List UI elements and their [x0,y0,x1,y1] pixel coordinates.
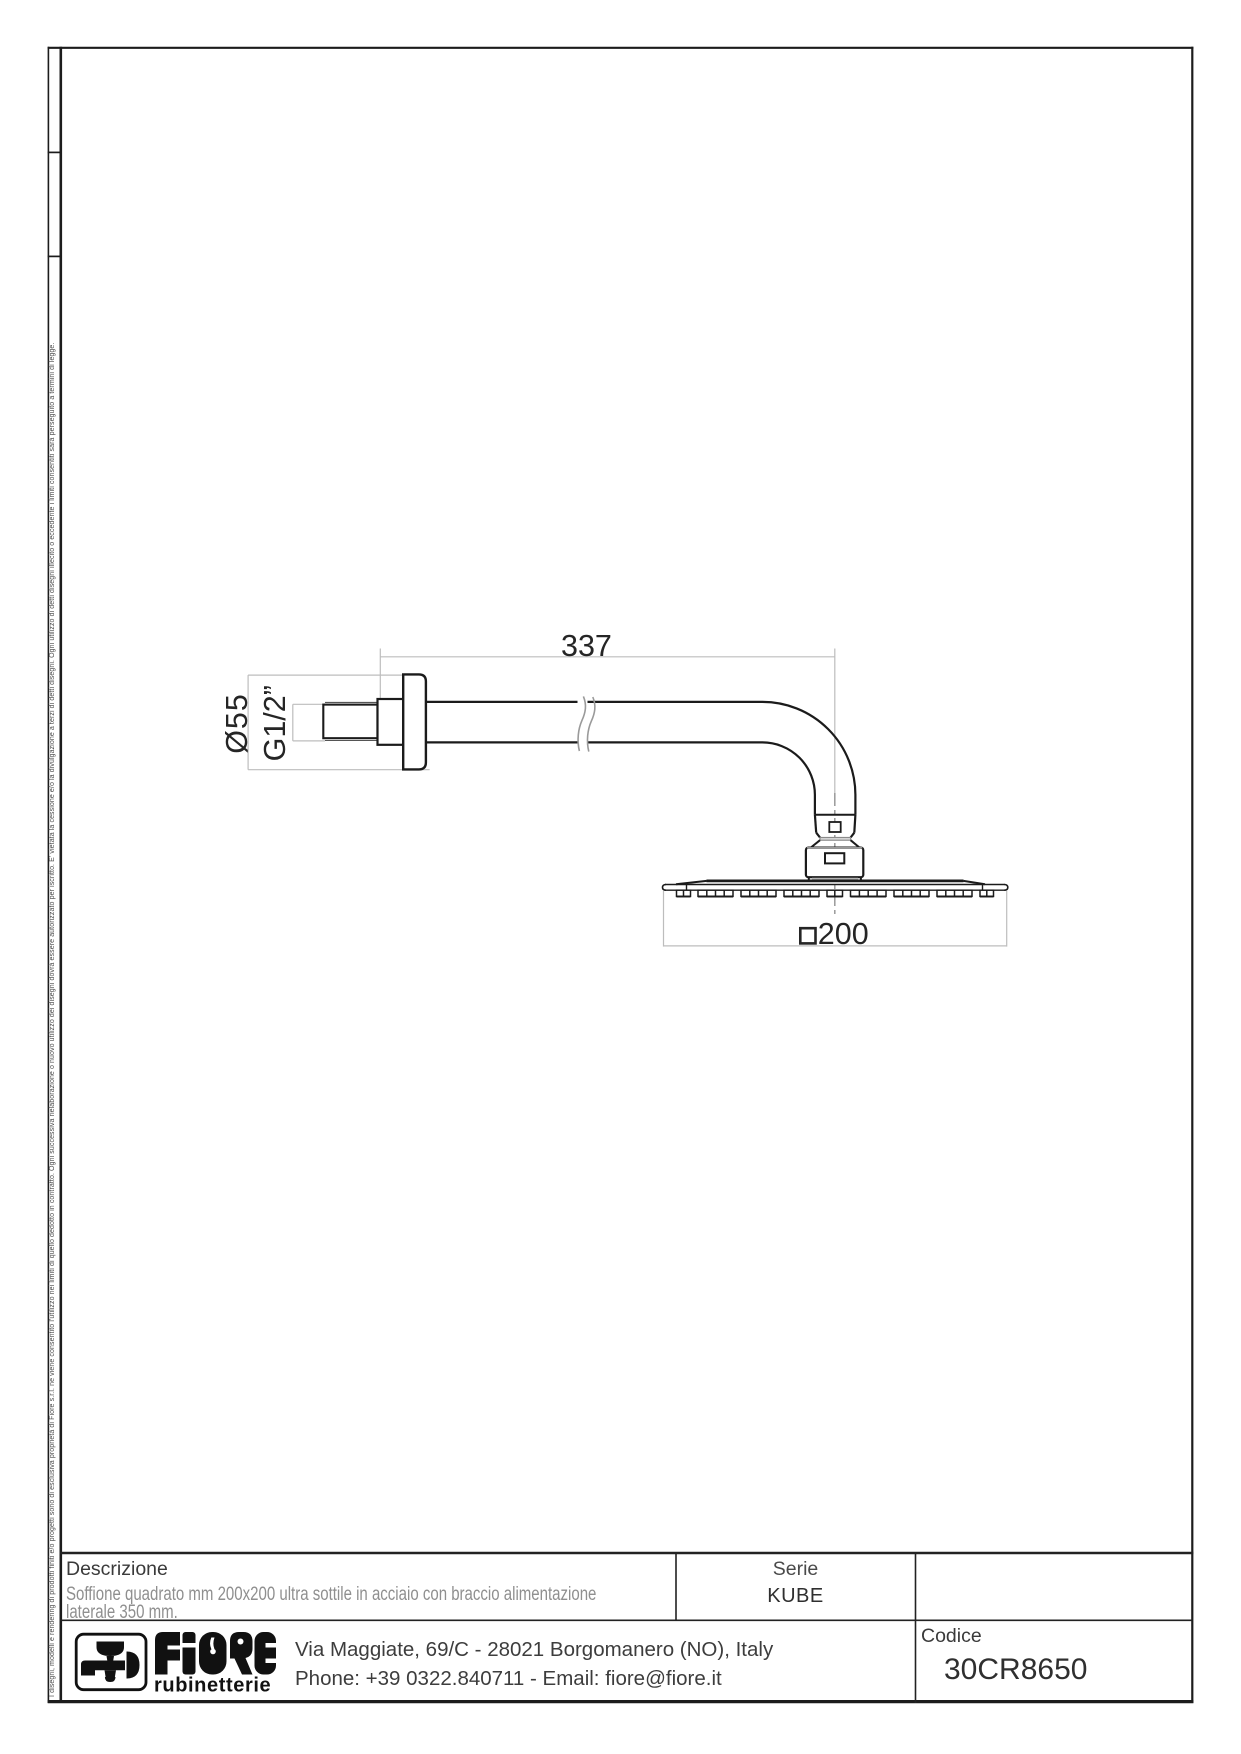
svg-text:rubinetterie: rubinetterie [154,1675,271,1697]
svg-text:G1/2”: G1/2” [258,685,292,761]
svg-text:200: 200 [818,917,869,951]
svg-text:Ø55: Ø55 [220,693,254,754]
svg-text:337: 337 [561,629,612,663]
